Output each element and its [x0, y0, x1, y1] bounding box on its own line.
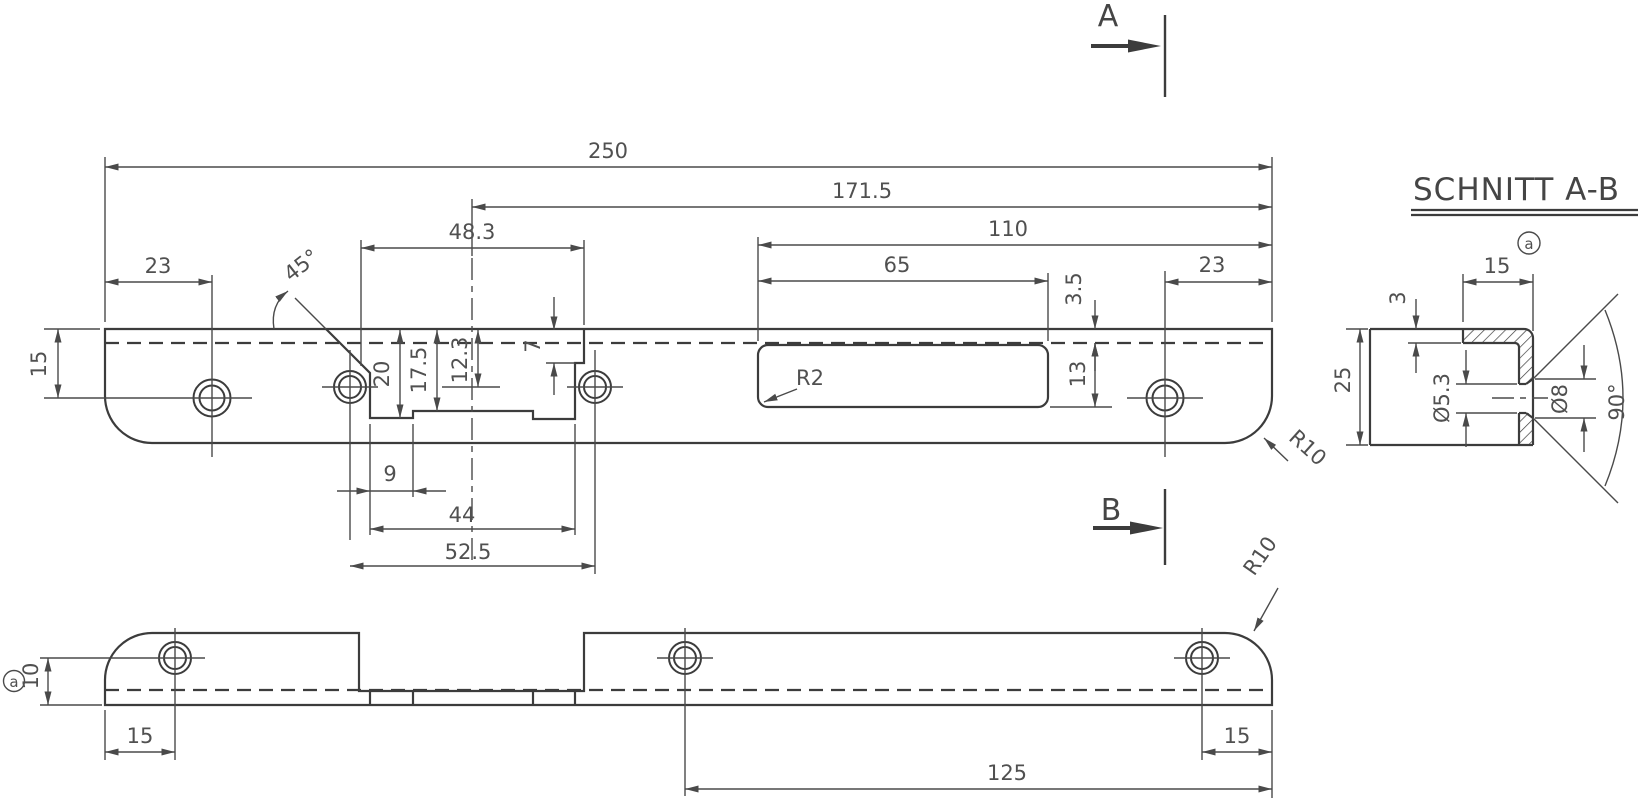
dim-recess-width-bottom: 44 — [449, 503, 476, 527]
dim-total-length: 250 — [588, 139, 628, 163]
dim-step-depth: 7 — [521, 339, 545, 352]
dim-lip-offset: 3.5 — [1062, 272, 1086, 305]
dim-hole-to-end: 125 — [987, 761, 1027, 785]
strike-plate-drawing: A B — [0, 0, 1641, 800]
dim-countersink-angle: 90° — [1605, 383, 1629, 420]
bevel-extension-line — [295, 298, 326, 329]
dim-right-hole-offset: 23 — [1199, 253, 1226, 277]
dim-slot-width: 13 — [1066, 361, 1090, 388]
dim-slot-corner-radius: R2 — [796, 366, 824, 390]
section-view: SCHNITT A-B a — [1331, 172, 1638, 503]
technical-drawing-page: A B — [0, 0, 1641, 800]
datum-symbol-section: a — [1518, 232, 1540, 254]
lip-notch-ticks — [370, 691, 575, 705]
dim-lip-width: 15 — [1484, 254, 1511, 278]
dim-left-hole-offset: 23 — [145, 254, 172, 278]
plate-outline — [105, 329, 1272, 443]
section-marker-a-label: A — [1098, 0, 1119, 34]
dim-hole-to-bottom: 10 — [19, 663, 43, 690]
dim-faceplate-width: 48.3 — [449, 220, 496, 244]
top-view: 250 171.5 110 65 23 23 48.3 — [27, 139, 1331, 574]
dim-top-edge-to-hole: 15 — [27, 351, 51, 378]
section-arrow-a-icon — [1128, 40, 1161, 53]
dim-recess-depth-center: 12.3 — [448, 337, 472, 384]
dim-countersink-diameter: Ø8 — [1548, 384, 1572, 414]
dim-slot-length: 65 — [884, 253, 911, 277]
bottom-view-dimensions: a 10 15 15 125 R10 — [4, 532, 1282, 798]
dim-recess-depth-mid: 17.5 — [407, 347, 431, 394]
top-view-dimensions: 250 171.5 110 65 23 23 48.3 — [27, 139, 1331, 566]
section-arrow-b-icon — [1130, 522, 1163, 535]
section-marker-b-label: B — [1101, 493, 1122, 528]
dim-hole-diameter: Ø5.3 — [1430, 373, 1454, 423]
section-hatching — [1463, 329, 1533, 445]
dim-slot-to-end: 110 — [988, 217, 1028, 241]
dim-hole-spacing: 52.5 — [445, 540, 492, 564]
dim-corner-radius-bottom-view: R10 — [1239, 532, 1282, 580]
dim-plate-thickness: 3 — [1386, 291, 1410, 304]
section-title: SCHNITT A-B — [1413, 172, 1620, 208]
section-marker-a: A — [1091, 0, 1165, 97]
datum-label-section: a — [1524, 235, 1533, 253]
dim-center-to-end: 171.5 — [832, 179, 892, 203]
section-marker-b: B — [1093, 489, 1165, 565]
dim-recess-depth-outer: 20 — [370, 361, 394, 388]
dim-left-edge-to-hole: 15 — [127, 724, 154, 748]
bottom-view-centerlines — [40, 628, 1230, 796]
datum-label-bottom: a — [9, 673, 18, 691]
dim-step-offset: 9 — [383, 462, 396, 486]
dim-plate-height: 25 — [1331, 367, 1355, 394]
bottom-view: a 10 15 15 125 R10 — [4, 532, 1282, 798]
dim-right-edge-to-hole: 15 — [1224, 724, 1251, 748]
dim-corner-radius-top-view: R10 — [1284, 425, 1331, 470]
dim-bevel-angle: 45° — [279, 244, 323, 286]
